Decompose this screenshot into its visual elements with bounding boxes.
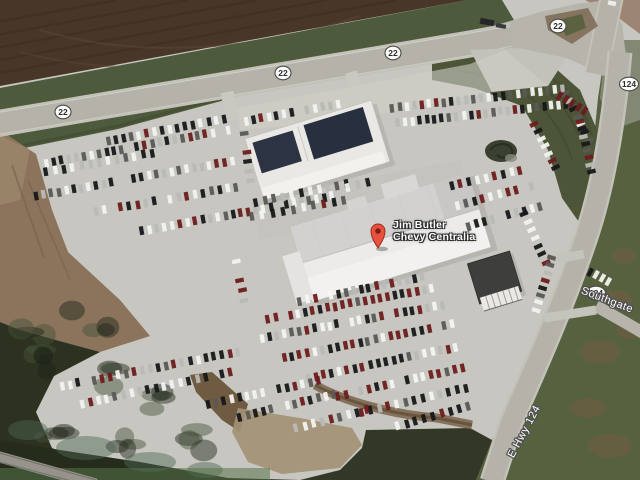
satellite-imagery: 22222222124124E Hwy 124Southgate [0, 0, 640, 480]
driveway-west [227, 92, 233, 120]
svg-text:22: 22 [278, 68, 288, 78]
route-shield-22: 22 [275, 66, 291, 80]
svg-text:22: 22 [553, 21, 563, 31]
route-shield-124: 124 [620, 77, 639, 91]
route-shield-22: 22 [55, 105, 71, 119]
route-shield-22: 22 [385, 46, 401, 60]
route-shield-22: 22 [550, 19, 566, 33]
svg-text:22: 22 [388, 48, 398, 58]
svg-text:22: 22 [58, 107, 68, 117]
svg-text:124: 124 [622, 79, 636, 89]
satellite-map[interactable]: 22222222124124E Hwy 124Southgate Jim But… [0, 0, 640, 480]
